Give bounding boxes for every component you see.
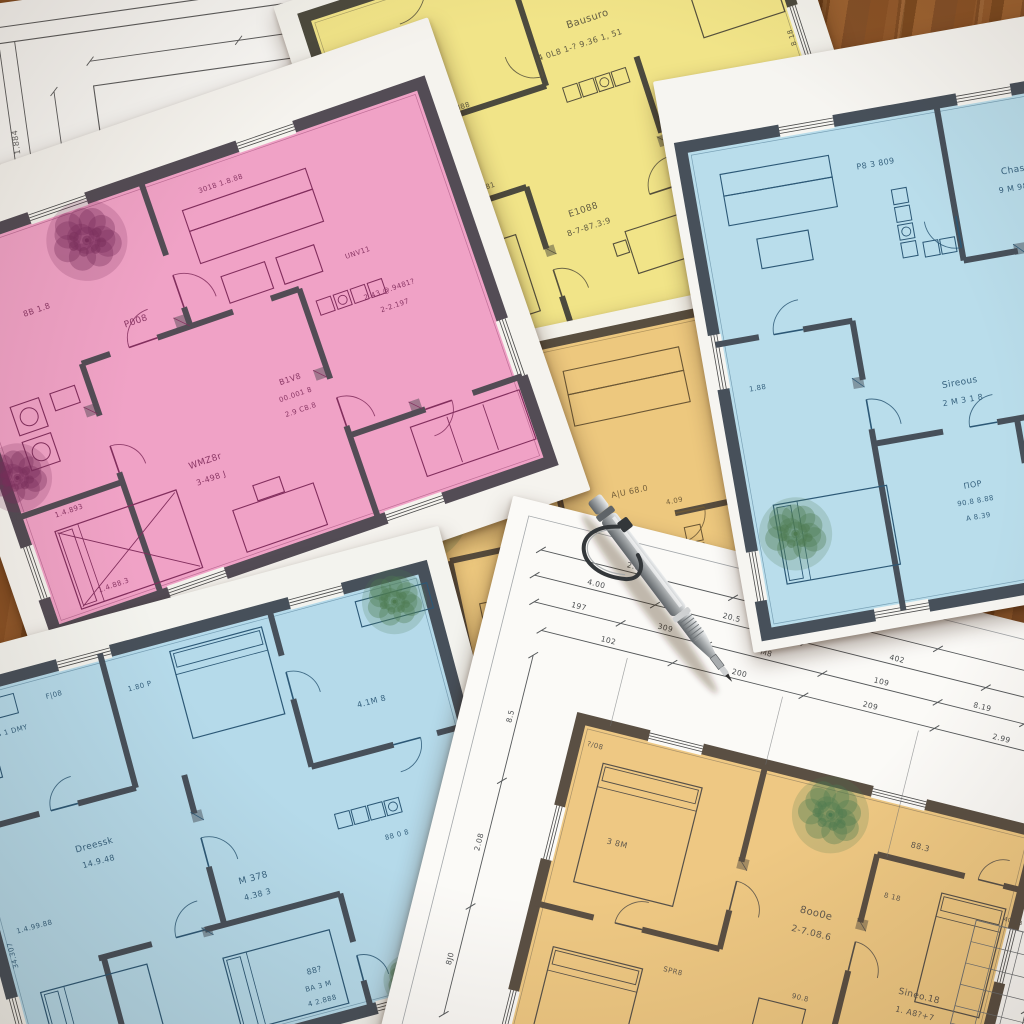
dimension-text: 8J0 [444, 951, 456, 966]
dimension-text: 209 [862, 700, 879, 712]
dimension-text: 197 [570, 600, 587, 612]
plan-label: 1.884 [10, 129, 22, 155]
dimension-text: 2.08 [472, 832, 485, 852]
dimension-text: 102 [600, 634, 617, 646]
dimension-text: 402 [889, 653, 906, 665]
dimension-text: 8.5 [504, 709, 516, 724]
pencil-lead [725, 673, 734, 683]
dimension-text: 109 [873, 675, 890, 687]
photo-floorplans-on-desk: IntyUnsi|o37.383.0101.8845|2 5|0 Bausuro… [0, 0, 1024, 1024]
